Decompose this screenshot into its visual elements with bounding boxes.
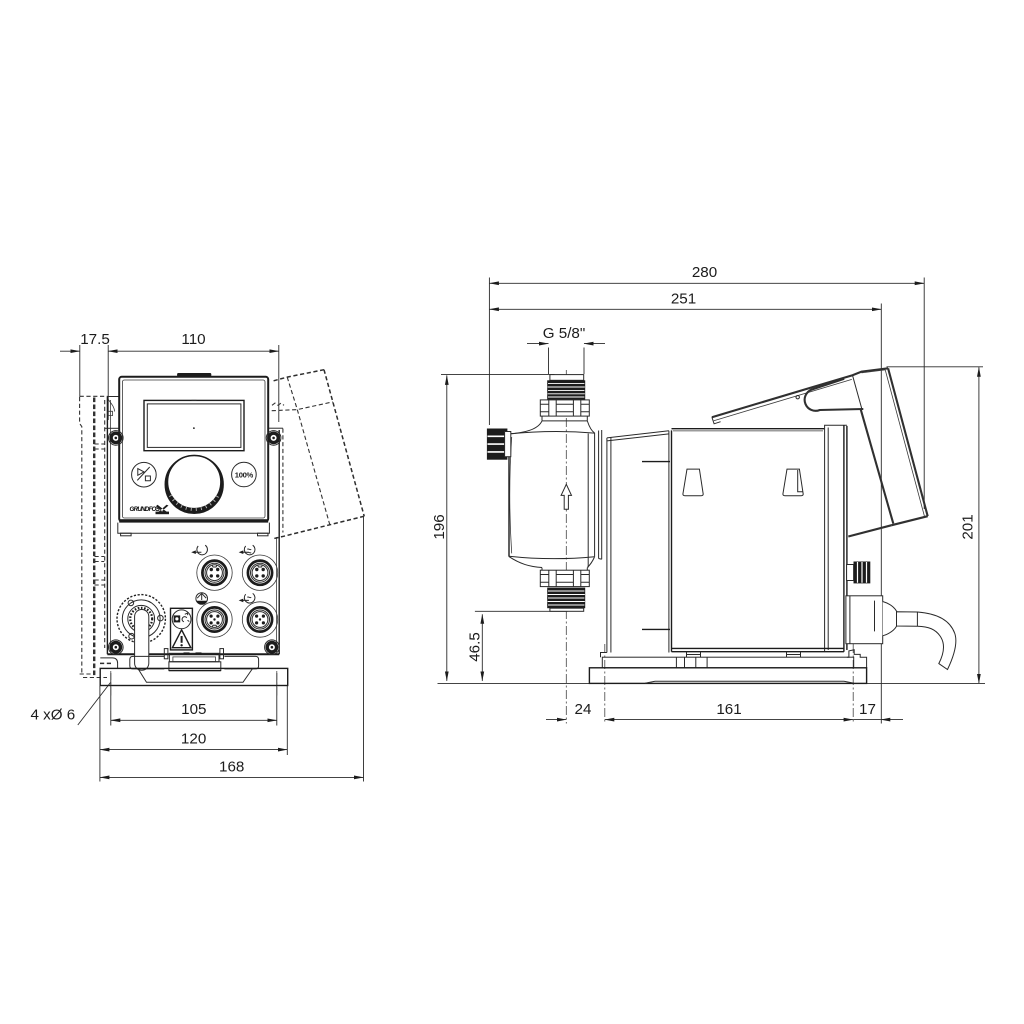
svg-text:24: 24: [575, 701, 592, 718]
svg-text:46.5: 46.5: [467, 632, 484, 662]
svg-text:120: 120: [181, 731, 206, 748]
svg-text:G 5/8": G 5/8": [543, 325, 586, 342]
svg-text:17.5: 17.5: [80, 331, 110, 348]
svg-text:GRUNDFOS: GRUNDFOS: [130, 506, 160, 513]
svg-text:161: 161: [716, 701, 741, 718]
svg-text:168: 168: [219, 758, 244, 775]
svg-text:196: 196: [431, 514, 448, 539]
svg-text:105: 105: [181, 701, 206, 718]
svg-text:110: 110: [181, 331, 205, 348]
svg-text:100%: 100%: [235, 471, 254, 480]
svg-text:251: 251: [671, 291, 696, 308]
svg-text:201: 201: [960, 514, 977, 539]
svg-text:4 xØ 6: 4 xØ 6: [31, 707, 76, 724]
svg-text:280: 280: [692, 264, 717, 281]
svg-text:17: 17: [859, 701, 876, 718]
